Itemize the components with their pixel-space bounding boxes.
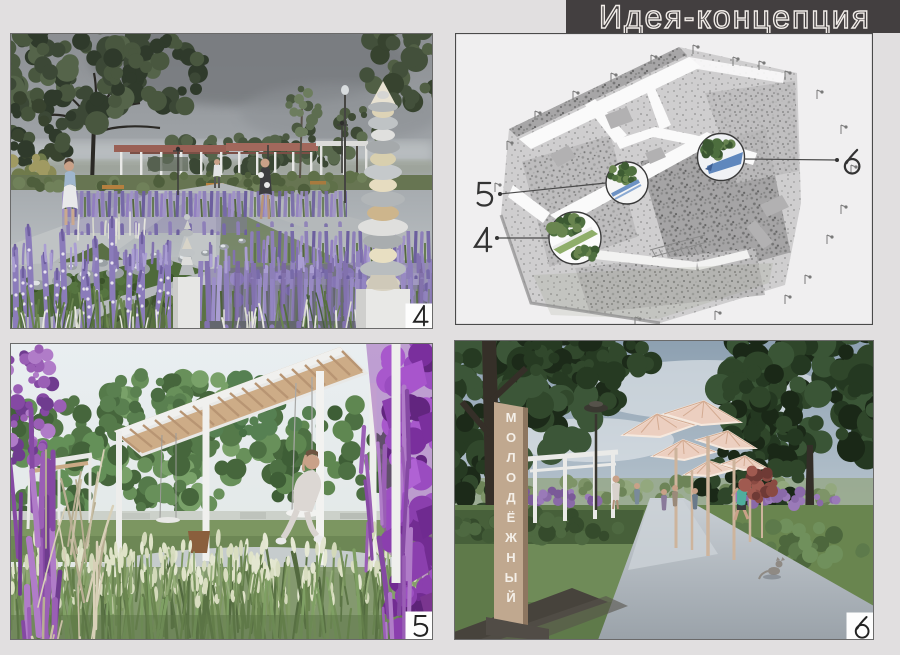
- svg-text:Ж: Ж: [504, 530, 517, 545]
- svg-text:М: М: [506, 410, 517, 425]
- svg-text:Д: Д: [506, 490, 516, 505]
- svg-text:Ё: Ё: [507, 510, 516, 525]
- svg-text:О: О: [506, 470, 516, 485]
- svg-text:О: О: [506, 430, 516, 445]
- svg-text:Й: Й: [506, 590, 515, 605]
- svg-text:Идея-концепция: Идея-концепция: [599, 0, 871, 33]
- svg-text:Л: Л: [506, 450, 515, 465]
- svg-text:Н: Н: [506, 550, 515, 565]
- svg-text:Ы: Ы: [505, 570, 518, 585]
